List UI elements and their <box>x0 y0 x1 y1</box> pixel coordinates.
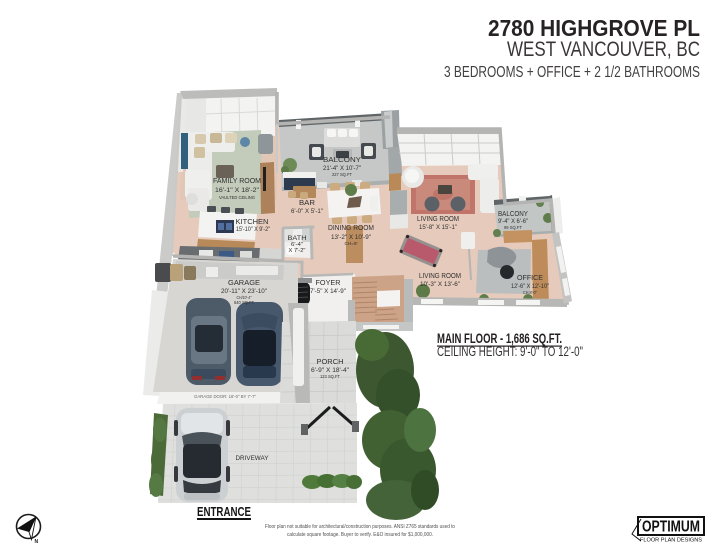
svg-text:12'-6" X 12'-10": 12'-6" X 12'-10" <box>511 283 549 290</box>
svg-text:ENTRANCE: ENTRANCE <box>197 504 251 519</box>
svg-text:13'-2" X 10'-9": 13'-2" X 10'-9" <box>331 234 371 241</box>
svg-text:20'-11" X 23'-10": 20'-11" X 23'-10" <box>221 288 267 295</box>
svg-text:OPTIMUM: OPTIMUM <box>642 519 700 536</box>
svg-text:DINING ROOM: DINING ROOM <box>328 225 374 232</box>
svg-text:GARAGE DOOR: 18'-0" BY 7'-7": GARAGE DOOR: 18'-0" BY 7'-7" <box>194 394 256 399</box>
svg-text:calculate square footage. Buye: calculate square footage. Buyer to verif… <box>287 532 433 538</box>
svg-text:FLOOR PLAN DESIGNS: FLOOR PLAN DESIGNS <box>640 538 702 544</box>
svg-text:BATH: BATH <box>288 235 307 242</box>
svg-text:123 SQ.FT: 123 SQ.FT <box>320 374 340 379</box>
svg-text:CH 8'-0": CH 8'-0" <box>523 290 537 295</box>
svg-text:10'-3" X 13'-6": 10'-3" X 13'-6" <box>420 281 460 288</box>
svg-text:15'-10" X 9'-2": 15'-10" X 9'-2" <box>236 226 270 233</box>
svg-text:KITCHEN: KITCHEN <box>236 219 269 226</box>
svg-text:6'-9" X 18'-4": 6'-9" X 18'-4" <box>311 367 349 374</box>
svg-text:15'-8" X 15'-1": 15'-8" X 15'-1" <box>419 224 457 231</box>
svg-text:Floor plan not suitable for ar: Floor plan not suitable for architectura… <box>265 524 455 530</box>
svg-text:BAR: BAR <box>299 200 315 207</box>
svg-text:LIVING ROOM: LIVING ROOM <box>417 216 459 223</box>
svg-text:N: N <box>35 539 39 545</box>
svg-text:540 SQ.FT: 540 SQ.FT <box>234 300 254 305</box>
svg-text:21'-4" X 10'-7": 21'-4" X 10'-7" <box>323 165 361 172</box>
svg-text:WEST VANCOUVER, BC: WEST VANCOUVER, BC <box>507 38 700 61</box>
svg-text:227 SQ.FT: 227 SQ.FT <box>332 172 352 177</box>
svg-text:9'-4" X 6'-6": 9'-4" X 6'-6" <box>498 218 528 225</box>
svg-text:DRIVEWAY: DRIVEWAY <box>236 455 270 462</box>
svg-text:CH=9': CH=9' <box>345 241 358 246</box>
svg-text:OFFICE: OFFICE <box>517 275 543 282</box>
svg-text:16'-1" X 18'-2": 16'-1" X 18'-2" <box>215 187 259 194</box>
svg-text:PORCH: PORCH <box>317 359 344 366</box>
svg-text:GARAGE: GARAGE <box>228 280 260 287</box>
svg-text:7'-5" X 14'-9": 7'-5" X 14'-9" <box>310 288 346 295</box>
svg-text:FAMILY ROOM: FAMILY ROOM <box>213 178 261 185</box>
svg-text:VAULTED CEILING: VAULTED CEILING <box>219 195 255 200</box>
svg-text:FOYER: FOYER <box>316 280 341 287</box>
svg-text:CEILING HEIGHT: 9'-0" TO 12'-0: CEILING HEIGHT: 9'-0" TO 12'-0" <box>437 344 583 359</box>
svg-text:6'-0" X 5'-1": 6'-0" X 5'-1" <box>291 208 323 215</box>
svg-text:BALCONY: BALCONY <box>323 157 361 164</box>
svg-text:BALCONY: BALCONY <box>498 211 528 218</box>
svg-text:3 BEDROOMS + OFFICE + 2 1/2 BA: 3 BEDROOMS + OFFICE + 2 1/2 BATHROOMS <box>444 64 700 81</box>
svg-text:X 7'-2": X 7'-2" <box>289 248 306 254</box>
svg-text:99 SQ.FT: 99 SQ.FT <box>504 225 522 230</box>
svg-text:LIVING ROOM: LIVING ROOM <box>419 273 461 280</box>
